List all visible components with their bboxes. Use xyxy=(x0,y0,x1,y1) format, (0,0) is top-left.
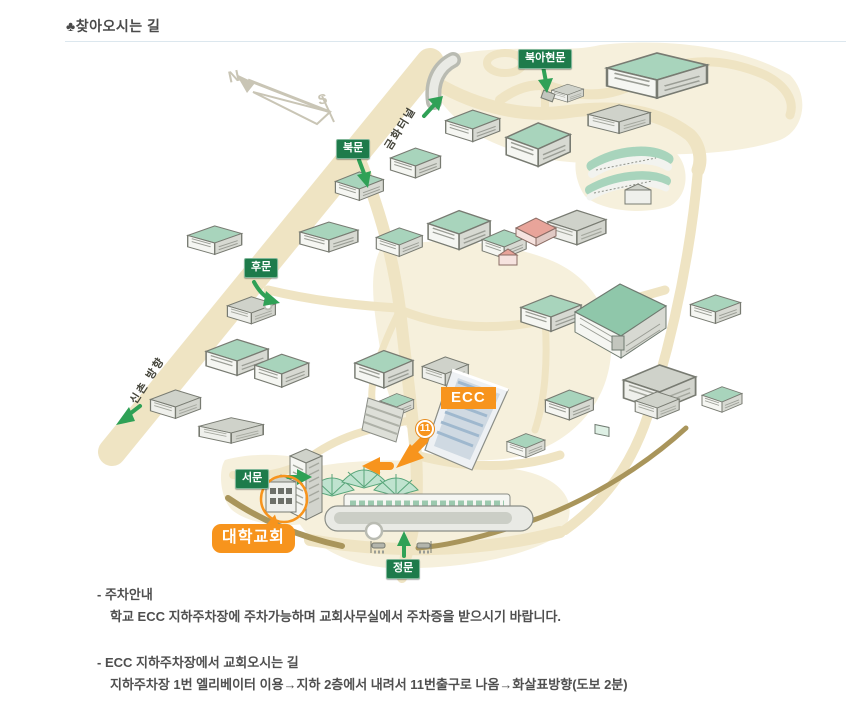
compass-south-label: S xyxy=(316,90,328,108)
oval-building xyxy=(325,506,533,531)
parking-body: 학교 ECC 지하주차장에 주차가능하며 교회사무실에서 주차증을 받으시기 바… xyxy=(97,606,817,628)
church-label: 대학교회 xyxy=(212,524,295,553)
gate-label-west: 서문 xyxy=(235,469,269,489)
parking-title: - 주차안내 xyxy=(97,584,817,606)
exit-11-badge: 11 xyxy=(416,420,434,438)
gate-label-north: 북문 xyxy=(336,139,370,159)
ecc-label: ECC xyxy=(441,387,496,409)
compass-rose: N S xyxy=(227,68,334,124)
notes: - 주차안내 학교 ECC 지하주차장에 주차가능하며 교회사무실에서 주차증을… xyxy=(97,584,817,696)
roundabout xyxy=(366,523,382,539)
route-title: - ECC 지하주차장에서 교회오시는 길 xyxy=(97,652,817,674)
compass-north-label: N xyxy=(227,68,242,87)
gate-label-bukahyeon: 북아현문 xyxy=(518,49,572,69)
gate-label-back: 후문 xyxy=(244,258,278,278)
campus-map: N S xyxy=(0,0,851,600)
directions-page: ♣찾아오시는 길 xyxy=(0,0,851,720)
campus-map-graphic: N S xyxy=(0,0,851,600)
gate-label-main: 정문 xyxy=(386,559,420,579)
route-body: 지하주차장 1번 엘리베이터 이용→지하 2층에서 내려서 11번출구로 나옴→… xyxy=(97,674,817,696)
